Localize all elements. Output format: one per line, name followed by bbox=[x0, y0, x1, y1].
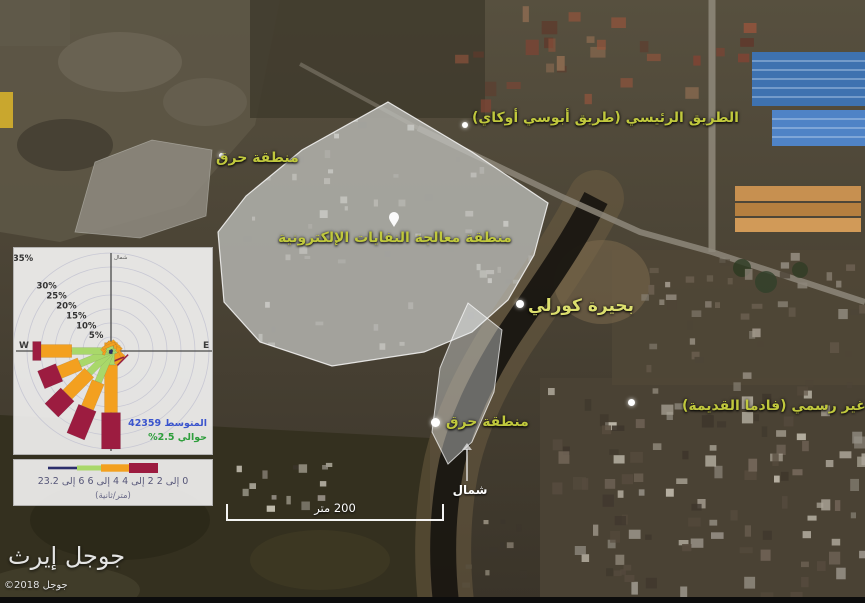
google-earth-viewport[interactable]: الطريق الرئيسي (طريق أبوسي أوكاي) منطقة … bbox=[0, 0, 865, 603]
placemark-dot-burn-south[interactable] bbox=[431, 418, 440, 427]
yellow-building bbox=[0, 92, 13, 128]
svg-text:5%: 5% bbox=[89, 331, 104, 341]
label-main-road: الطريق الرئيسي (طريق أبوسي أوكاي) bbox=[472, 110, 739, 126]
wind-rose-panel: WEشمال5%10%15%20%25%30%35% المتوسط 42359… bbox=[13, 247, 213, 455]
placemark-dot-main-road[interactable] bbox=[462, 122, 468, 128]
orange-warehouses bbox=[735, 186, 861, 232]
wind-rose-unit-label: (متر/ثانية) bbox=[14, 491, 212, 501]
wind-rose-calm-value: حوالي 2.5% bbox=[148, 432, 207, 443]
label-ewaste-area: منطقة معالجة النفايات الإلكترونية bbox=[278, 230, 512, 246]
placemark-pin-ewaste[interactable] bbox=[388, 212, 400, 228]
placemark-dot-lagoon[interactable] bbox=[516, 300, 524, 308]
svg-text:35%: 35% bbox=[14, 254, 34, 264]
svg-text:15%: 15% bbox=[66, 311, 87, 321]
north-label: شمال bbox=[448, 483, 492, 497]
wind-rose-mean-value: المتوسط 42359 bbox=[128, 418, 207, 429]
bottom-edge-bar bbox=[0, 597, 865, 603]
svg-text:E: E bbox=[203, 341, 209, 351]
label-burn-area-south: منطقة حرق bbox=[446, 414, 529, 430]
placemark-dot-community[interactable] bbox=[628, 399, 635, 406]
google-earth-watermark: جوجل إيرث bbox=[8, 542, 125, 570]
svg-text:W: W bbox=[19, 341, 29, 351]
north-arrow-line bbox=[466, 449, 468, 481]
svg-text:30%: 30% bbox=[36, 282, 57, 292]
label-burn-area-north: منطقة حرق bbox=[216, 150, 299, 166]
svg-text:25%: 25% bbox=[46, 292, 67, 302]
copyright-text: ©2018 جوجل bbox=[4, 580, 68, 591]
wind-rose-legend-bar bbox=[14, 460, 214, 476]
wind-rose-legend-ranges: 0 إلى 2 2 إلى 4 4 إلى 6 6 إلى 23.2 bbox=[14, 476, 212, 487]
scale-bar-label: 200 متر bbox=[225, 501, 445, 515]
wind-rose-legend-panel: 0 إلى 2 2 إلى 4 4 إلى 6 6 إلى 23.2 (متر/… bbox=[13, 459, 213, 506]
label-informal-community: مجتمع غير رسمي (فادما القديمة) bbox=[682, 398, 865, 414]
label-korle-lagoon: بحيرة كورلي bbox=[528, 296, 634, 316]
svg-text:شمال: شمال bbox=[114, 255, 128, 261]
svg-text:10%: 10% bbox=[76, 321, 97, 331]
svg-text:20%: 20% bbox=[56, 301, 77, 311]
